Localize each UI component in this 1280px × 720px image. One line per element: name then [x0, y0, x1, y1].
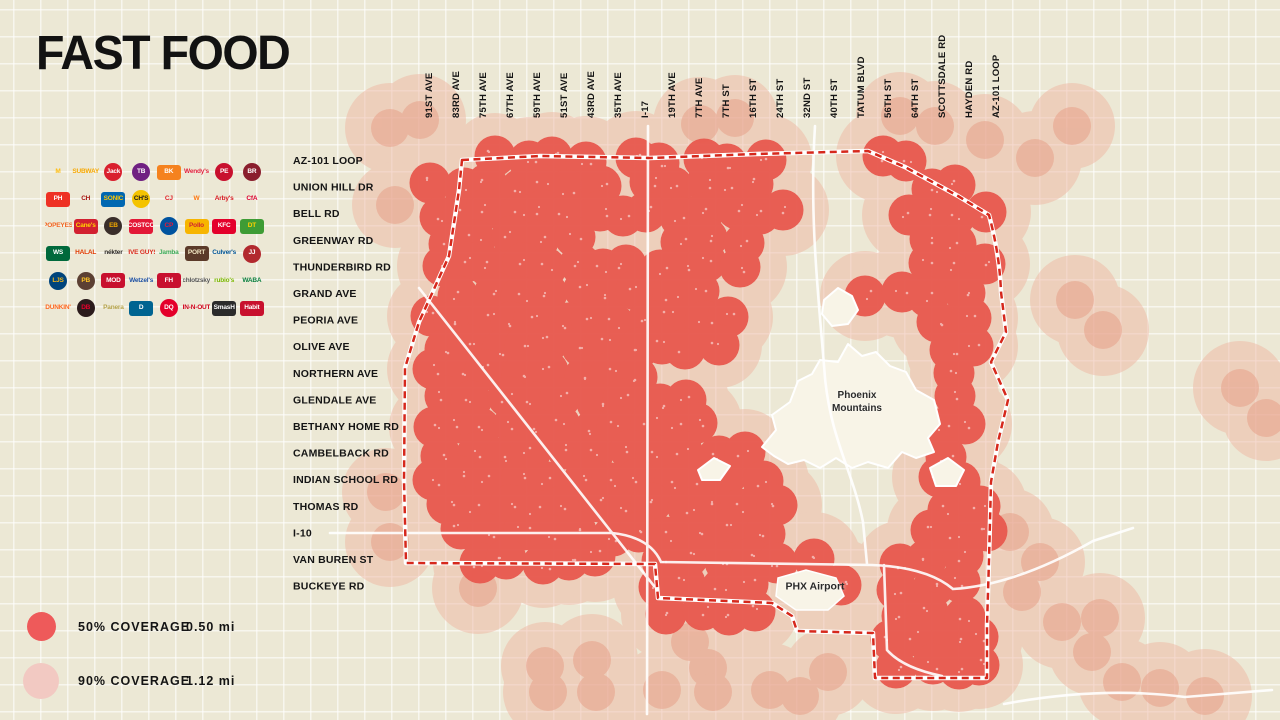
logo-pizza-hut: PH: [46, 192, 70, 207]
logo-arbys: Arby's: [211, 191, 238, 207]
brand-logo-grid: MSUBWAYJackTBBKWendy'sPEBRPHCHSONICCH'SC…: [45, 161, 273, 327]
logo-dunkin: DUNKIN': [45, 300, 72, 316]
logo-abbr-kfc: KFC: [218, 223, 231, 230]
logo-abbr-smashburger: SmasH: [214, 305, 235, 312]
logo-jamba: Jamba: [155, 246, 182, 262]
left-axis-label-az-101-loop: AZ-101 LOOP: [293, 155, 363, 167]
logo-nekter: nékter: [100, 246, 127, 262]
top-axis-label-scottsdale-rd: SCOTTSDALE RD: [937, 35, 948, 118]
logo-abbr-dunkin: DUNKIN': [45, 305, 70, 312]
logo-abbr-in-n-out: IN-N-OUT: [183, 305, 210, 312]
left-axis-label-cambelback-rd: CAMBELBACK RD: [293, 448, 389, 460]
logo-long-john-silvers: LJS: [49, 272, 67, 290]
logo-abbr-firehouse-subs: FH: [165, 278, 173, 285]
top-axis-label-i-17: I-17: [640, 101, 651, 118]
logo-whataburger: W: [183, 191, 210, 207]
phoenix-mountains-label: Phoenix Mountains: [832, 389, 882, 415]
logo-abbr-popeyes: POPEYES: [45, 223, 72, 230]
left-axis-label-greenway-rd: GREENWAY RD: [293, 235, 374, 247]
logo-abbr-dominos: D: [139, 305, 144, 312]
logo-wendys: Wendy's: [183, 164, 210, 180]
left-axis-label-olive-ave: OLIVE AVE: [293, 341, 350, 353]
logo-abbr-subway: SUBWAY: [72, 169, 99, 176]
logo-jimmy-johns: JJ: [243, 245, 261, 263]
legend-value-90pct: 1.12 mi: [186, 674, 235, 688]
logo-wetzels-pretzels: Wetzel's: [128, 273, 155, 289]
logo-sonic: SONIC: [101, 192, 125, 207]
logo-abbr-pizza-hut: PH: [54, 196, 63, 203]
logo-kfc: KFC: [212, 219, 236, 234]
logo-culvers: Culver's: [211, 246, 238, 262]
logo-the-habit: Habit: [240, 301, 264, 316]
top-axis-label-tatum-blvd: TATUM BLVD: [856, 56, 867, 118]
logo-mod-pizza: MOD: [101, 273, 125, 288]
page-title: FAST FOOD: [36, 26, 289, 81]
logo-abbr-chick-fil-a: CfA: [246, 196, 257, 203]
logo-abbr-dutch-bros: DB: [81, 305, 90, 312]
logo-mcdonalds: M: [45, 164, 72, 180]
logo-abbr-mod-pizza: MOD: [106, 278, 121, 285]
fast-food-coverage-infographic: 91ST AVE83RD AVE75TH AVE67TH AVE59TH AVE…: [0, 0, 1280, 720]
legend-label-90pct: 90% COVERAGE: [78, 674, 190, 688]
logo-abbr-carls-jr: CJ: [165, 196, 173, 203]
logo-black-rock-coffee: BR: [243, 163, 261, 181]
logo-chick-fil-a: CfA: [238, 191, 265, 207]
logo-el-pollo-loco: Pollo: [185, 219, 209, 234]
logo-del-taco: DT: [240, 219, 264, 234]
top-axis-label-43rd-ave: 43RD AVE: [586, 71, 597, 118]
logo-dutch-bros: DB: [77, 299, 95, 317]
logo-abbr-costco: COSTCO: [129, 223, 153, 230]
left-axis-label-buckeye-rd: BUCKEYE RD: [293, 581, 365, 593]
logo-abbr-the-habit: Habit: [244, 305, 259, 312]
coverage-map: 91ST AVE83RD AVE75TH AVE67TH AVE59TH AVE…: [0, 0, 1280, 720]
logo-abbr-panda-express: PE: [220, 169, 228, 176]
logo-potbelly: PB: [77, 272, 95, 290]
logo-halal-guys: HALAL: [72, 246, 99, 262]
logo-abbr-burger-king: BK: [164, 169, 173, 176]
top-axis-label-35th-ave: 35TH AVE: [613, 72, 624, 118]
left-axis-label-thunderbird-rd: THUNDERBIRD RD: [293, 261, 391, 273]
logo-portillos: PORT: [185, 246, 209, 261]
left-axis-label-van-buren-st: VAN BUREN ST: [293, 554, 374, 566]
left-axis-label-i-10: I-10: [293, 527, 312, 539]
logo-smashburger: SmasH: [212, 301, 236, 316]
legend-swatch-90pct-circle: [23, 663, 59, 699]
top-axis-label-59th-ave: 59TH AVE: [532, 72, 543, 118]
logo-charleys: CP: [160, 217, 178, 235]
logo-subway: SUBWAY: [72, 164, 99, 180]
logo-waba-grill: WABA: [238, 273, 265, 289]
logo-abbr-whataburger: W: [194, 196, 200, 203]
logo-panera-bread: Panera: [100, 300, 127, 316]
logo-abbr-wetzels-pretzels: Wetzel's: [129, 278, 153, 285]
left-axis-label-bethany-home-rd: BETHANY HOME RD: [293, 421, 399, 433]
logo-abbr-nekter: nékter: [104, 250, 122, 257]
logo-abbr-wingstop: WS: [53, 250, 63, 257]
top-axis-label-56th-st: 56TH ST: [883, 79, 894, 118]
logo-abbr-taco-bell: TB: [137, 169, 145, 176]
phoenix-mountains-label-line1: Phoenix: [832, 389, 882, 402]
top-axis-label-91st-ave: 91ST AVE: [424, 73, 435, 118]
logo-carls-jr: CJ: [155, 191, 182, 207]
top-axis-label-az-101-loop: AZ-101 LOOP: [991, 54, 1002, 118]
logo-abbr-schlotzskys: Schlotzsky's: [183, 278, 210, 285]
left-axis-label-glendale-ave: GLENDALE AVE: [293, 394, 377, 406]
logo-abbr-halal-guys: HALAL: [75, 250, 96, 257]
legend-swatch-50pct-circle: [27, 612, 56, 641]
logo-churchs-chicken: CH'S: [132, 190, 150, 208]
top-axis-label-24th-st: 24TH ST: [775, 79, 786, 118]
top-axis-label-16th-st: 16TH ST: [748, 79, 759, 118]
logo-abbr-mcdonalds: M: [55, 169, 60, 176]
logo-abbr-jimmy-johns: JJ: [248, 250, 255, 257]
left-axis-label-union-hill-dr: UNION HILL DR: [293, 182, 374, 194]
logo-dominos: D: [129, 301, 153, 316]
logo-dairy-queen: DQ: [160, 299, 178, 317]
left-axis-label-bell-rd: BELL RD: [293, 208, 340, 220]
top-axis-label-40th-st: 40TH ST: [829, 79, 840, 118]
left-axis-label-peoria-ave: PEORIA AVE: [293, 315, 358, 327]
logo-rubios: rubio's: [211, 273, 238, 289]
logo-raising-canes: Cane's: [74, 219, 98, 234]
logo-panda-express: PE: [215, 163, 233, 181]
left-axis-label-indian-school-rd: INDIAN SCHOOL RD: [293, 474, 398, 486]
top-axis-label-83rd-ave: 83RD AVE: [451, 71, 462, 118]
logo-abbr-einstein-bros: EB: [109, 223, 118, 230]
top-axis-label-32nd-st: 32ND ST: [802, 78, 813, 118]
logo-abbr-sonic: SONIC: [104, 196, 124, 203]
logo-abbr-chipotle: CH: [81, 196, 90, 203]
logo-abbr-jack-in-the-box: Jack: [107, 169, 121, 176]
logo-abbr-dairy-queen: DQ: [164, 305, 173, 312]
logo-abbr-culvers: Culver's: [212, 250, 236, 257]
logo-wingstop: WS: [46, 246, 70, 261]
logo-einstein-bros: EB: [104, 217, 122, 235]
logo-burger-king: BK: [157, 165, 181, 180]
top-axis-label-64th-st: 64TH ST: [910, 79, 921, 118]
legend-label-50pct: 50% COVERAGE: [78, 620, 190, 634]
top-axis-label-67th-ave: 67TH AVE: [505, 72, 516, 118]
logo-abbr-black-rock-coffee: BR: [247, 169, 256, 176]
logo-abbr-five-guys: FIVE GUYS: [128, 250, 155, 257]
phx-airport-label: PHX Airport: [785, 581, 844, 594]
left-axis-label-grand-ave: GRAND AVE: [293, 288, 357, 300]
legend-value-50pct: 0.50 mi: [186, 620, 235, 634]
top-axis-label-7th-st: 7TH ST: [721, 84, 732, 118]
logo-abbr-long-john-silvers: LJS: [52, 278, 63, 285]
logo-costco: COSTCO: [129, 219, 153, 234]
logo-abbr-charleys: CP: [164, 223, 173, 230]
logo-abbr-el-pollo-loco: Pollo: [189, 223, 204, 230]
top-axis-label-75th-ave: 75TH AVE: [478, 72, 489, 118]
logo-abbr-del-taco: DT: [248, 223, 256, 230]
left-axis-label-northern-ave: NORTHERN AVE: [293, 368, 378, 380]
logo-abbr-wendys: Wendy's: [184, 169, 209, 176]
logo-abbr-arbys: Arby's: [215, 196, 234, 203]
logo-firehouse-subs: FH: [157, 273, 181, 288]
logo-abbr-raising-canes: Cane's: [76, 223, 96, 230]
logo-taco-bell: TB: [132, 163, 150, 181]
logo-popeyes: POPEYES: [45, 218, 72, 234]
top-axis-label-hayden-rd: HAYDEN RD: [964, 61, 975, 118]
logo-five-guys: FIVE GUYS: [128, 246, 155, 262]
logo-schlotzskys: Schlotzsky's: [183, 273, 210, 289]
logo-chipotle: CH: [72, 191, 99, 207]
top-axis-label-19th-ave: 19TH AVE: [667, 72, 678, 118]
top-axis-label-51st-ave: 51ST AVE: [559, 73, 570, 118]
phoenix-mountains-label-line2: Mountains: [832, 402, 882, 415]
logo-abbr-potbelly: PB: [81, 278, 90, 285]
logo-abbr-waba-grill: WABA: [242, 278, 261, 285]
logo-abbr-portillos: PORT: [188, 250, 205, 257]
logo-abbr-jamba: Jamba: [159, 250, 179, 257]
logo-in-n-out: IN-N-OUT: [183, 300, 210, 316]
logo-abbr-churchs-chicken: CH'S: [134, 196, 148, 203]
top-axis-label-7th-ave: 7TH AVE: [694, 78, 705, 118]
logo-abbr-rubios: rubio's: [214, 278, 234, 285]
logo-jack-in-the-box: Jack: [104, 163, 122, 181]
left-axis-label-thomas-rd: THOMAS RD: [293, 501, 359, 513]
logo-abbr-panera-bread: Panera: [103, 305, 123, 312]
